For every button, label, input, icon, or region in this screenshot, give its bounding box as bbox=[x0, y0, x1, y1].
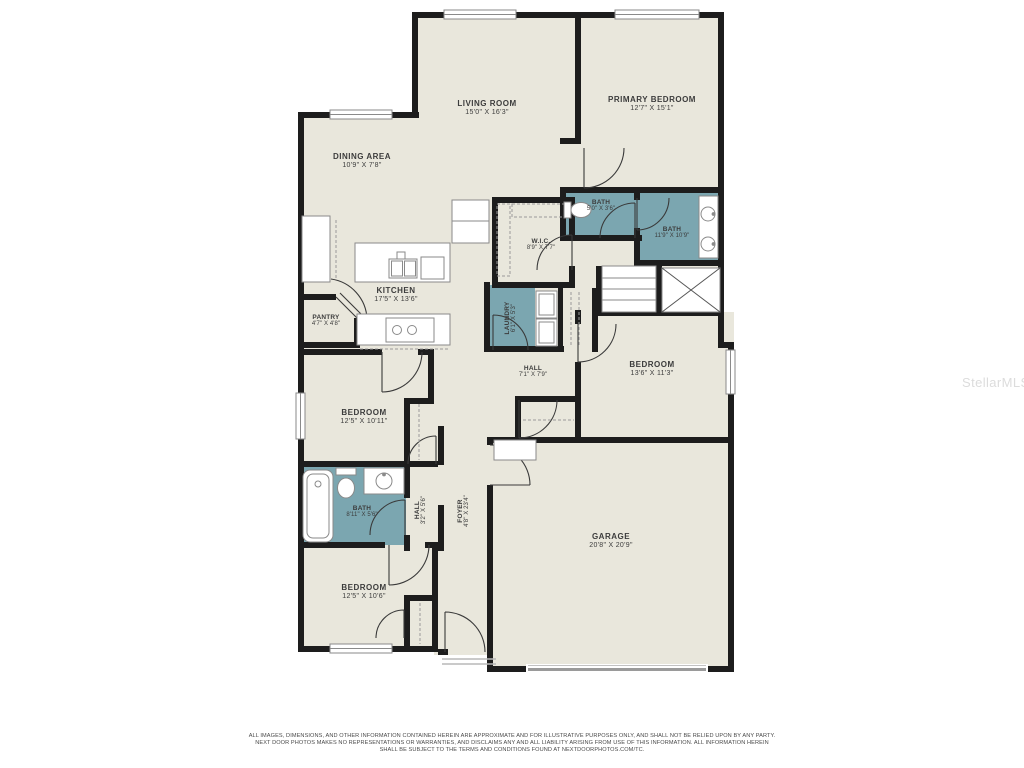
room-dims: 12'5" X 10'6" bbox=[341, 593, 386, 601]
room-dims: 12'7" X 15'1" bbox=[608, 105, 696, 113]
room-dims: 11'9" X 10'9" bbox=[655, 233, 690, 240]
linen-closet-icon bbox=[602, 266, 656, 312]
room-label-bedroom-bottom: BEDROOM 12'5" X 10'6" bbox=[341, 583, 386, 601]
floorplan-page: LIVING ROOM 15'0" X 16'3" PRIMARY BEDROO… bbox=[0, 0, 1024, 768]
room-name: BATH bbox=[587, 199, 615, 206]
toilet-hall-icon bbox=[336, 468, 356, 498]
room-label-hall-center: HALL 7'1" X 7'9" bbox=[519, 365, 547, 379]
room-name: LAUNDRY bbox=[504, 302, 511, 335]
room-name: KITCHEN bbox=[374, 286, 417, 295]
disclaimer-line-1: ALL IMAGES, DIMENSIONS, AND OTHER INFORM… bbox=[0, 733, 1024, 740]
room-dims: 17'5" X 13'6" bbox=[374, 296, 417, 304]
room-dims: 5'0" X 3'6" bbox=[587, 206, 615, 213]
room-dims: 4'8" X 23'4" bbox=[464, 495, 471, 527]
kitchen-left-counter-icon bbox=[302, 216, 330, 282]
room-name: PANTRY bbox=[312, 314, 340, 321]
room-name: HALL bbox=[519, 365, 547, 372]
washer-dryer-icon bbox=[536, 291, 557, 346]
sink-hall-icon bbox=[364, 468, 404, 494]
room-label-bath-primary: BATH 11'9" X 10'9" bbox=[655, 226, 690, 240]
vanity-double-sink-icon bbox=[699, 196, 718, 258]
room-name: BATH bbox=[655, 226, 690, 233]
room-dims: 3'2" X 5'6" bbox=[421, 496, 428, 524]
room-label-living-room: LIVING ROOM 15'0" X 16'3" bbox=[457, 99, 516, 117]
room-name: LIVING ROOM bbox=[457, 99, 516, 108]
room-name: BATH bbox=[346, 505, 377, 512]
room-label-dining-area: DINING AREA 10'9" X 7'8" bbox=[333, 152, 391, 170]
shower-icon bbox=[662, 268, 720, 312]
room-label-laundry: LAUNDRY 6'1" X 5'3" bbox=[504, 302, 518, 335]
room-name: W.I.C. bbox=[527, 238, 555, 245]
room-dims: 10'9" X 7'8" bbox=[333, 162, 391, 170]
disclaimer: ALL IMAGES, DIMENSIONS, AND OTHER INFORM… bbox=[0, 733, 1024, 754]
watermark: StellarMLS bbox=[962, 375, 1024, 390]
room-label-wic: W.I.C. 8'9" X 7'7" bbox=[527, 238, 555, 252]
room-dims: 20'8" X 20'9" bbox=[589, 542, 632, 550]
room-dims: 13'6" X 11'3" bbox=[629, 370, 674, 378]
room-label-garage: GARAGE 20'8" X 20'9" bbox=[589, 532, 632, 550]
room-dims: 8'11" X 5'6" bbox=[346, 512, 377, 519]
kitchen-counter-stove-icon bbox=[357, 314, 450, 345]
room-name: BEDROOM bbox=[341, 583, 386, 592]
room-dims: 6'1" X 5'3" bbox=[511, 302, 518, 335]
room-label-bedroom-left: BEDROOM 12'5" X 10'11" bbox=[340, 408, 387, 426]
room-dims: 4'7" X 4'8" bbox=[312, 321, 340, 328]
disclaimer-line-3: SHALL BE SUBJECT TO THE TERMS AND CONDIT… bbox=[0, 747, 1024, 754]
room-label-kitchen: KITCHEN 17'5" X 13'6" bbox=[374, 286, 417, 304]
room-name: HALL bbox=[414, 496, 421, 524]
window-bedroom-left bbox=[296, 393, 305, 439]
room-label-bedroom-right: BEDROOM 13'6" X 11'3" bbox=[629, 360, 674, 378]
room-label-bath-primary-wc: BATH 5'0" X 3'6" bbox=[587, 199, 615, 213]
garage-door bbox=[526, 664, 708, 673]
room-label-bath-hall: BATH 8'11" X 5'6" bbox=[346, 505, 377, 519]
kitchen-island-icon bbox=[355, 243, 450, 282]
room-name: PRIMARY BEDROOM bbox=[608, 95, 696, 104]
window-bedroom-right bbox=[726, 350, 735, 394]
window-primary bbox=[615, 10, 699, 19]
garage-step bbox=[494, 440, 536, 460]
room-label-primary-bedroom: PRIMARY BEDROOM 12'7" X 15'1" bbox=[608, 95, 696, 113]
room-label-foyer: FOYER 4'8" X 23'4" bbox=[457, 495, 471, 527]
room-label-pantry: PANTRY 4'7" X 4'8" bbox=[312, 314, 340, 328]
window-living bbox=[444, 10, 516, 19]
room-name: DINING AREA bbox=[333, 152, 391, 161]
disclaimer-line-2: NEXT DOOR PHOTOS MAKES NO REPRESENTATION… bbox=[0, 740, 1024, 747]
room-dims: 12'5" X 10'11" bbox=[340, 418, 387, 426]
window-bedroom-bottom bbox=[330, 644, 392, 653]
bathtub-icon bbox=[303, 470, 333, 542]
room-dims: 15'0" X 16'3" bbox=[457, 109, 516, 117]
room-name: BEDROOM bbox=[340, 408, 387, 417]
room-name: BEDROOM bbox=[629, 360, 674, 369]
room-dims: 7'1" X 7'9" bbox=[519, 372, 547, 379]
room-name: FOYER bbox=[457, 495, 464, 527]
room-dims: 8'9" X 7'7" bbox=[527, 245, 555, 252]
room-label-hall-small: HALL 3'2" X 5'6" bbox=[414, 496, 428, 524]
window-dining bbox=[330, 110, 392, 119]
room-name: GARAGE bbox=[589, 532, 632, 541]
refrigerator-icon bbox=[452, 200, 489, 243]
